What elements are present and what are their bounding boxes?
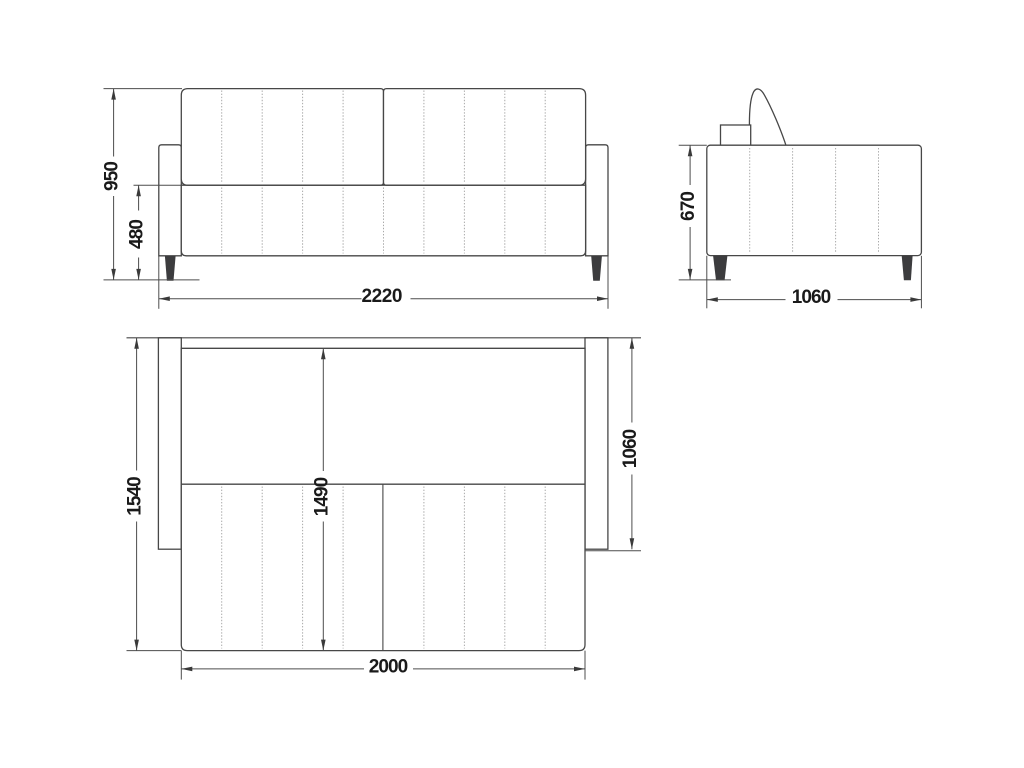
svg-text:1060: 1060 [620,429,641,469]
svg-text:670: 670 [678,191,699,221]
svg-text:1490: 1490 [311,477,332,517]
svg-text:950: 950 [102,161,123,191]
svg-text:1060: 1060 [792,287,832,308]
svg-text:2220: 2220 [362,286,403,307]
svg-text:480: 480 [127,219,148,249]
svg-text:2000: 2000 [369,656,409,677]
svg-text:1540: 1540 [125,476,146,516]
